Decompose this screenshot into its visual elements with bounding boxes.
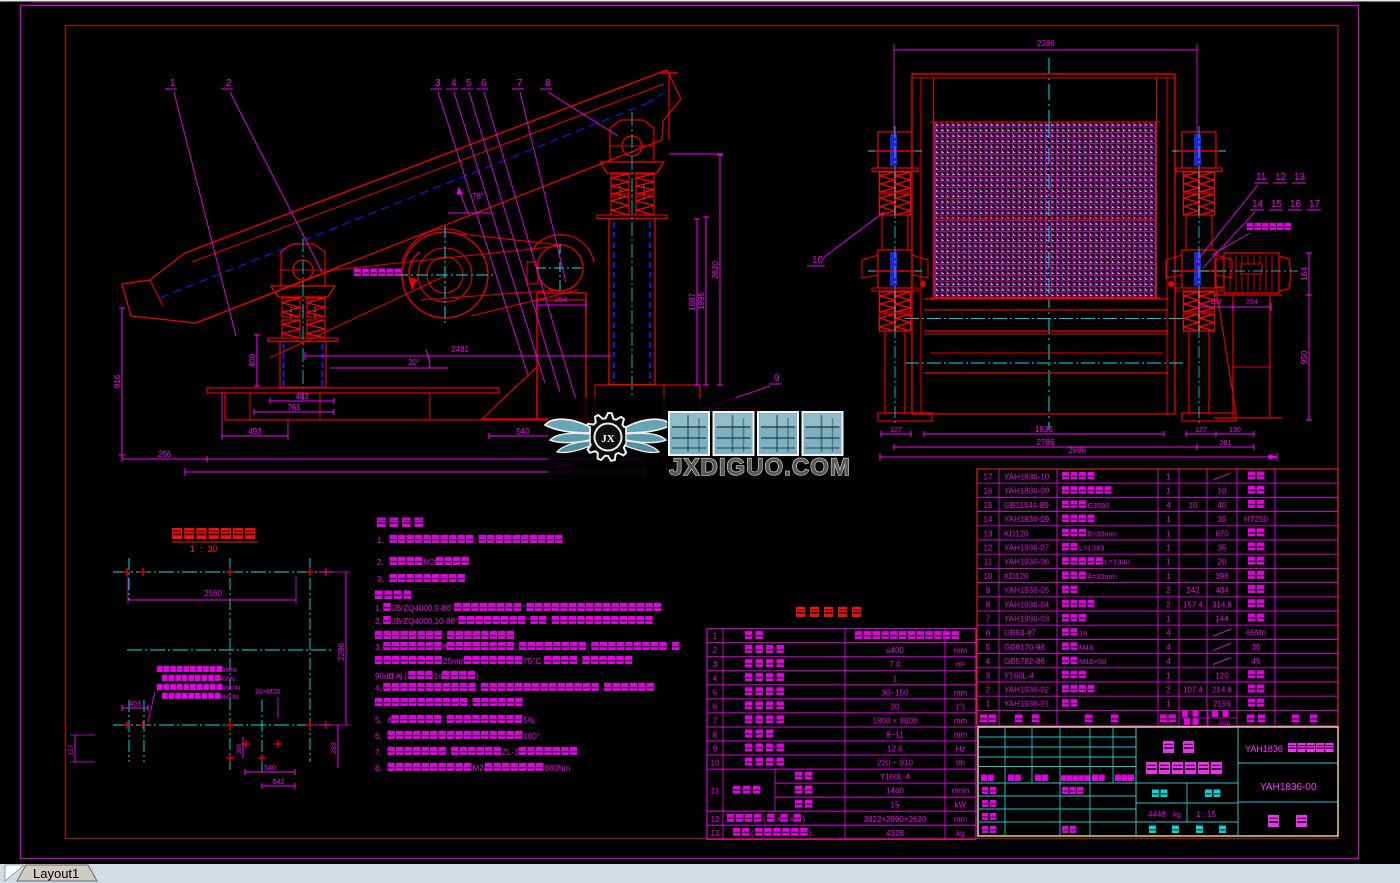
svg-text:.: . <box>524 699 526 708</box>
svg-text:2620: 2620 <box>711 261 720 279</box>
svg-text:.: . <box>532 716 534 725</box>
svg-text:“: “ <box>450 604 453 613</box>
svg-text:16: 16 <box>1079 629 1087 638</box>
svg-text:”: ” <box>522 604 525 613</box>
svg-text:5: 5 <box>466 78 472 89</box>
svg-text:65Mn: 65Mn <box>1246 629 1266 638</box>
svg-text:2,: 2, <box>375 617 382 626</box>
svg-text:12: 12 <box>1275 172 1287 183</box>
svg-text:670: 670 <box>1215 529 1229 538</box>
svg-text:950: 950 <box>1300 350 1309 364</box>
svg-text:C3550: C3550 <box>1088 501 1110 510</box>
svg-text:δ=30mm: δ=30mm <box>1088 529 1117 538</box>
svg-text:.: . <box>466 575 468 584</box>
svg-text:1: 1 <box>1166 615 1171 624</box>
svg-text:r/min: r/min <box>952 787 970 796</box>
svg-text:5: 5 <box>986 643 991 652</box>
svg-text:396: 396 <box>1215 572 1229 581</box>
svg-text:JB/ZQ4000.10-88: JB/ZQ4000.10-88 <box>392 617 456 626</box>
svg-text:.: . <box>662 604 664 613</box>
svg-text:220 ~ 910: 220 ~ 910 <box>877 759 913 768</box>
svg-text:7.0: 7.0 <box>889 660 901 669</box>
svg-text:GB93-87: GB93-87 <box>1004 629 1037 638</box>
svg-text:5: 5 <box>713 688 718 697</box>
svg-text:kg: kg <box>1173 810 1181 819</box>
svg-text:KD120: KD120 <box>1004 529 1029 538</box>
svg-text:6: 6 <box>986 629 991 638</box>
svg-text:,: , <box>447 748 449 757</box>
svg-text:.: . <box>480 672 482 681</box>
svg-text:,: , <box>477 684 479 693</box>
svg-text:7: 7 <box>713 716 718 725</box>
svg-text:1987: 1987 <box>688 293 697 311</box>
svg-text:t/h: t/h <box>956 759 965 768</box>
svg-text:(: ( <box>404 672 407 681</box>
svg-text:4: 4 <box>986 657 991 666</box>
svg-text:2: 2 <box>1166 600 1171 609</box>
svg-text:2: 2 <box>713 646 718 655</box>
svg-text:Y160L-4: Y160L-4 <box>1004 671 1035 680</box>
svg-text:242: 242 <box>1186 586 1200 595</box>
svg-text:403: 403 <box>129 701 141 708</box>
svg-text:“: “ <box>454 617 457 626</box>
svg-text:542: 542 <box>273 779 285 786</box>
svg-text:14: 14 <box>984 515 993 524</box>
svg-text:45: 45 <box>1252 657 1261 666</box>
svg-text:≤400: ≤400 <box>886 646 904 655</box>
svg-text:9: 9 <box>986 586 991 595</box>
svg-text:13: 13 <box>711 829 720 838</box>
svg-text:(: ( <box>751 829 754 838</box>
svg-text:,: , <box>668 643 670 652</box>
svg-text:11: 11 <box>1256 172 1267 183</box>
svg-text:281: 281 <box>1220 440 1232 447</box>
svg-text:2: 2 <box>1166 586 1171 595</box>
svg-text:4: 4 <box>1166 657 1171 666</box>
svg-text:1835: 1835 <box>1035 425 1053 434</box>
svg-text:2560: 2560 <box>204 589 222 598</box>
svg-text:4: 4 <box>451 78 457 89</box>
svg-text:3822×2990×2620: 3822×2990×2620 <box>864 815 927 824</box>
svg-text:9: 9 <box>774 373 780 384</box>
svg-text:.: . <box>540 732 542 741</box>
svg-text:L=1349: L=1349 <box>1079 544 1104 553</box>
svg-text:(: ( <box>763 815 766 824</box>
svg-text:12: 12 <box>984 544 993 553</box>
svg-text:256: 256 <box>158 450 172 459</box>
svg-text:YAH1936-02: YAH1936-02 <box>1004 686 1050 695</box>
svg-text:493: 493 <box>248 427 262 436</box>
svg-text:4448: 4448 <box>1148 810 1166 819</box>
svg-text:100°: 100° <box>523 732 540 741</box>
svg-text:144: 144 <box>1215 615 1229 624</box>
svg-text:JXDIGUO.COM: JXDIGUO.COM <box>669 454 851 481</box>
svg-text:1: 1 <box>1166 473 1171 482</box>
svg-text:L=1340: L=1340 <box>1105 558 1130 567</box>
svg-text:(kg): (kg) <box>1219 720 1230 727</box>
svg-text:4: 4 <box>1166 643 1171 652</box>
svg-text:1: 1 <box>1166 487 1171 496</box>
svg-text:12: 12 <box>711 815 720 824</box>
svg-text:1460: 1460 <box>886 787 904 796</box>
svg-text:JX: JX <box>601 433 615 445</box>
svg-text:765: 765 <box>287 403 301 412</box>
svg-text:1: 1 <box>986 700 991 709</box>
svg-text:YAH1836-09: YAH1836-09 <box>1004 487 1050 496</box>
svg-text:3: 3 <box>713 660 718 669</box>
svg-text:1995: 1995 <box>697 292 706 310</box>
svg-text:214.8: 214.8 <box>1212 686 1233 695</box>
svg-text:10: 10 <box>1189 501 1198 510</box>
svg-text:540: 540 <box>264 765 276 772</box>
svg-text:δ=30mm: δ=30mm <box>1088 572 1117 581</box>
svg-text:3,: 3, <box>377 575 384 584</box>
svg-text:4900N: 4900N <box>222 685 240 692</box>
svg-text:1: 1 <box>1166 671 1171 680</box>
svg-text:35: 35 <box>1218 544 1227 553</box>
svg-text:”: ” <box>526 617 529 626</box>
svg-text:YAH1936-05: YAH1936-05 <box>1004 586 1050 595</box>
svg-text:8: 8 <box>545 78 551 89</box>
svg-text:4,: 4, <box>375 684 382 693</box>
svg-text:1: 1 <box>1166 700 1171 709</box>
svg-text:15: 15 <box>984 501 993 510</box>
svg-text:254: 254 <box>1246 299 1258 306</box>
svg-text:1: 1 <box>1166 558 1171 567</box>
svg-text:JB/ZQ4000.9-86: JB/ZQ4000.9-86 <box>392 604 451 613</box>
svg-text:17: 17 <box>1309 199 1321 210</box>
svg-text:2: 2 <box>226 78 232 89</box>
svg-text:15: 15 <box>1271 199 1283 210</box>
svg-text:YAH1836-10: YAH1836-10 <box>1004 473 1050 482</box>
svg-text:10: 10 <box>1218 487 1227 496</box>
svg-text:164: 164 <box>1300 267 1309 281</box>
svg-text:,: , <box>578 657 580 666</box>
svg-text:YAH1836-00: YAH1836-00 <box>1260 782 1317 793</box>
svg-text:(°): (°) <box>956 702 965 711</box>
svg-text:35: 35 <box>1252 643 1261 652</box>
svg-text:,: , <box>515 643 517 652</box>
svg-text:3: 3 <box>435 78 441 89</box>
svg-text:YAH1936-06: YAH1936-06 <box>1004 558 1050 567</box>
svg-text:1: 1 <box>893 674 898 683</box>
svg-text:400: 400 <box>248 353 257 367</box>
svg-text:7,: 7, <box>375 748 382 757</box>
svg-text:ZL-3: ZL-3 <box>502 748 519 757</box>
svg-text:8,: 8, <box>375 764 382 773</box>
svg-text:,: , <box>540 657 542 666</box>
svg-text:M16: M16 <box>1079 643 1094 652</box>
svg-text:mm: mm <box>954 646 968 655</box>
svg-text:1: 1 <box>170 78 176 89</box>
svg-text:9: 9 <box>713 745 718 754</box>
svg-text:2159: 2159 <box>1213 700 1231 709</box>
svg-text:127: 127 <box>1195 427 1207 434</box>
svg-text:8~11: 8~11 <box>886 730 904 739</box>
svg-text:): ) <box>476 672 479 681</box>
svg-text:916: 916 <box>113 374 122 388</box>
svg-text:10: 10 <box>984 572 993 581</box>
svg-text:.: . <box>470 558 472 567</box>
svg-text:2286: 2286 <box>1037 39 1055 48</box>
svg-text:6: 6 <box>481 78 487 89</box>
svg-text:YAH1936-04: YAH1936-04 <box>1004 600 1050 609</box>
svg-text:1: 1 <box>1166 529 1171 538</box>
svg-text:157.4: 157.4 <box>1183 600 1204 609</box>
svg-text:8: 8 <box>713 730 718 739</box>
svg-text:2: 2 <box>1166 686 1171 695</box>
svg-text:380: 380 <box>236 743 243 754</box>
svg-text:10: 10 <box>711 759 720 768</box>
svg-text:): ) <box>802 815 805 824</box>
svg-text:8: 8 <box>986 600 991 609</box>
svg-text:314.8: 314.8 <box>1212 600 1233 609</box>
svg-text:20: 20 <box>891 702 900 711</box>
svg-text:m²: m² <box>956 660 966 669</box>
svg-text:): ) <box>400 672 403 681</box>
svg-text:3: 3 <box>986 671 991 680</box>
svg-text:YAH1936-07: YAH1936-07 <box>1004 544 1050 553</box>
svg-text:3,: 3, <box>375 643 382 652</box>
svg-text:13: 13 <box>1294 172 1306 183</box>
svg-text:127: 127 <box>68 744 75 755</box>
svg-text:YAH1836: YAH1836 <box>1245 744 1283 754</box>
svg-text:kg: kg <box>956 829 964 838</box>
svg-text:1: 1 <box>1166 572 1171 581</box>
svg-text:4: 4 <box>713 674 718 683</box>
svg-text:2,: 2, <box>377 558 384 567</box>
svg-text:,: , <box>654 617 656 626</box>
svg-text:GB11544-89: GB11544-89 <box>1004 501 1049 510</box>
svg-text:.: . <box>515 632 517 641</box>
svg-text:1800 × 3600: 1800 × 3600 <box>873 716 918 725</box>
svg-text:kW: kW <box>955 801 967 810</box>
svg-text:mm: mm <box>954 815 968 824</box>
svg-text:,: , <box>548 617 550 626</box>
svg-text:15: 15 <box>891 801 900 810</box>
svg-text:.: . <box>565 764 567 773</box>
svg-text:127: 127 <box>890 427 902 434</box>
svg-text:,: , <box>469 699 471 708</box>
svg-text:YAH1936-01: YAH1936-01 <box>1004 700 1050 709</box>
svg-text:GB5782-86: GB5782-86 <box>1004 657 1045 666</box>
svg-text:,: , <box>460 657 462 666</box>
svg-text:,: , <box>600 684 602 693</box>
svg-text:13: 13 <box>984 529 993 538</box>
svg-text:30~150: 30~150 <box>882 688 909 697</box>
svg-text:2: 2 <box>986 686 991 695</box>
svg-text:540: 540 <box>516 427 530 436</box>
svg-text:4: 4 <box>1166 629 1171 638</box>
svg-text:190: 190 <box>1229 427 1241 434</box>
svg-text:400N: 400N <box>220 676 235 683</box>
svg-text:16: 16 <box>984 487 993 496</box>
svg-text:,: , <box>587 643 589 652</box>
svg-text:75°C: 75°C <box>523 657 541 666</box>
svg-text:20: 20 <box>1218 558 1227 567</box>
svg-text:KD120: KD120 <box>1004 572 1029 581</box>
svg-text:): ) <box>809 829 812 838</box>
svg-text:2786: 2786 <box>1037 438 1055 447</box>
svg-text:GB6170-96: GB6170-96 <box>1004 643 1045 652</box>
svg-text:2481: 2481 <box>451 345 469 354</box>
svg-text:2286: 2286 <box>337 643 346 661</box>
svg-text:12.6: 12.6 <box>887 745 903 754</box>
svg-text:40: 40 <box>1218 501 1227 510</box>
svg-text:(: ( <box>392 672 395 681</box>
svg-text:16: 16 <box>1290 199 1302 210</box>
svg-text:35: 35 <box>1218 515 1227 524</box>
svg-text:17: 17 <box>984 473 993 482</box>
svg-text:11: 11 <box>984 558 993 567</box>
svg-text:7: 7 <box>986 615 991 624</box>
svg-text:5,: 5, <box>375 716 382 725</box>
svg-text:,: , <box>443 716 445 725</box>
svg-text:YAH1936-09: YAH1936-09 <box>1004 515 1050 524</box>
svg-text:M16×50: M16×50 <box>1079 657 1106 666</box>
svg-text:20×M20: 20×M20 <box>255 689 281 696</box>
svg-text:1 : 30: 1 : 30 <box>190 544 218 554</box>
svg-text:Layout1: Layout1 <box>33 866 79 881</box>
svg-text:1: 1 <box>713 632 718 641</box>
svg-text:6,: 6, <box>375 732 382 741</box>
svg-text:1 : 15: 1 : 15 <box>1196 810 1217 819</box>
svg-text:7: 7 <box>517 78 523 89</box>
svg-text:283: 283 <box>331 742 338 754</box>
svg-text:2986: 2986 <box>1068 446 1086 455</box>
svg-text:.: . <box>564 536 566 545</box>
svg-text:2600N: 2600N <box>220 694 238 701</box>
svg-text:mm: mm <box>954 716 968 725</box>
svg-text:mm: mm <box>954 688 968 697</box>
svg-text:484: 484 <box>1215 586 1229 595</box>
svg-text:20°: 20° <box>408 358 420 367</box>
svg-text:1: 1 <box>1166 544 1171 553</box>
svg-text:mm: mm <box>954 730 968 739</box>
svg-text:14: 14 <box>1252 199 1264 210</box>
svg-text:980N: 980N <box>222 667 237 674</box>
svg-text:254: 254 <box>555 295 568 304</box>
svg-text:11: 11 <box>711 787 720 796</box>
svg-text:1,: 1, <box>375 604 382 613</box>
svg-text:182: 182 <box>1210 299 1222 306</box>
svg-text:4328: 4328 <box>886 829 904 838</box>
svg-text:483: 483 <box>295 392 309 401</box>
svg-text:Y160L-4: Y160L-4 <box>880 773 911 782</box>
svg-text:25mm: 25mm <box>443 657 466 666</box>
svg-text:120: 120 <box>1215 671 1229 680</box>
svg-text:107.4: 107.4 <box>1183 686 1204 695</box>
svg-text:YAH1936-03: YAH1936-03 <box>1004 615 1050 624</box>
svg-text:HT250: HT250 <box>1244 515 1269 524</box>
svg-text:4: 4 <box>1166 501 1171 510</box>
svg-text:1: 1 <box>1166 515 1171 524</box>
svg-text:.: . <box>578 748 580 757</box>
svg-text:,: , <box>474 536 476 545</box>
svg-text:10: 10 <box>812 255 824 266</box>
svg-text:Hz: Hz <box>956 745 966 754</box>
svg-text:78°: 78° <box>472 192 484 201</box>
svg-text:,: , <box>443 632 445 641</box>
svg-text:6: 6 <box>713 702 718 711</box>
svg-text:1,: 1, <box>377 536 384 545</box>
